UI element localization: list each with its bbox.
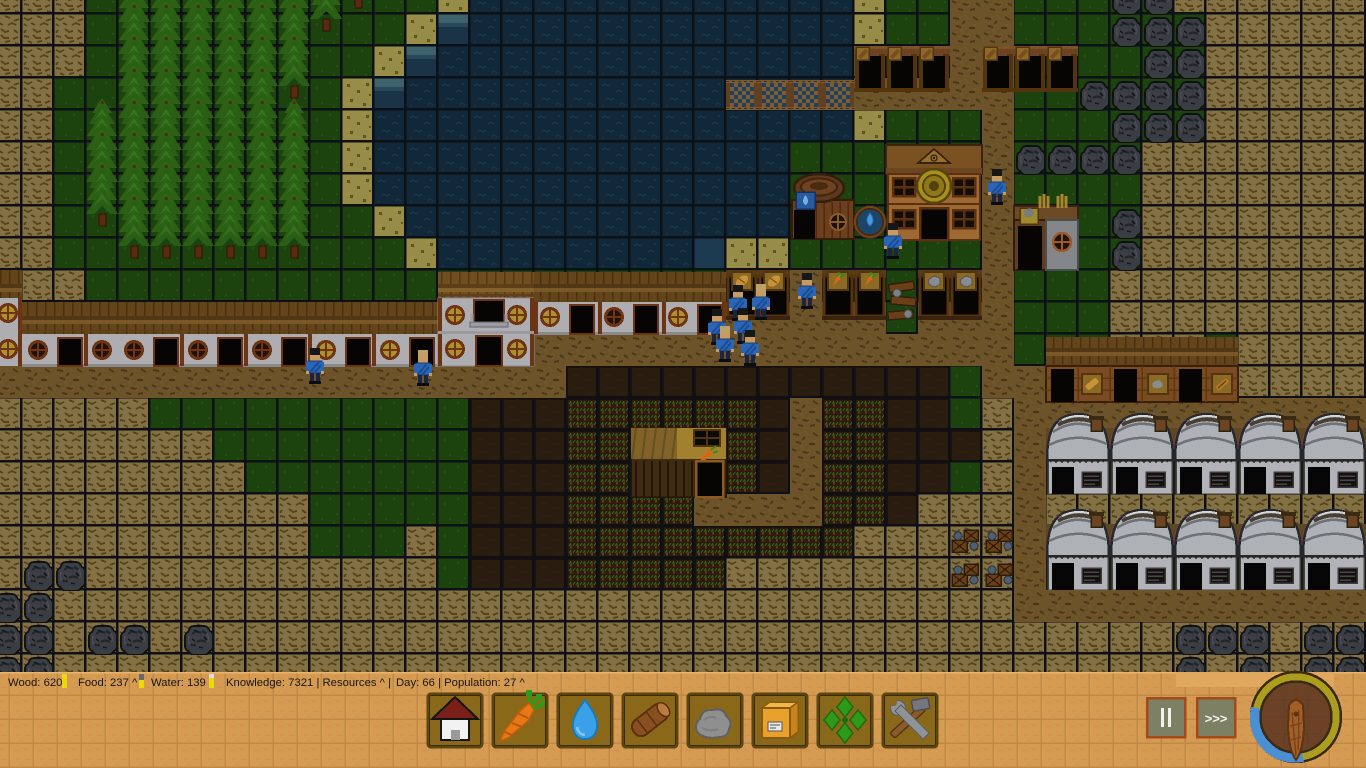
svg-text:Food: 237 ^: Food: 237 ^ [78,677,138,689]
svg-text:>>>: >>> [1205,711,1228,726]
svg-text:Knowledge: 7321 | Resources ^: Knowledge: 7321 | Resources ^ | [226,677,391,689]
svg-text:Wood: 620: Wood: 620 [8,677,62,689]
svg-text:Water: 139: Water: 139 [151,677,206,689]
svg-text:Day: 66 | Population: 27 ^: Day: 66 | Population: 27 ^ [396,677,526,689]
